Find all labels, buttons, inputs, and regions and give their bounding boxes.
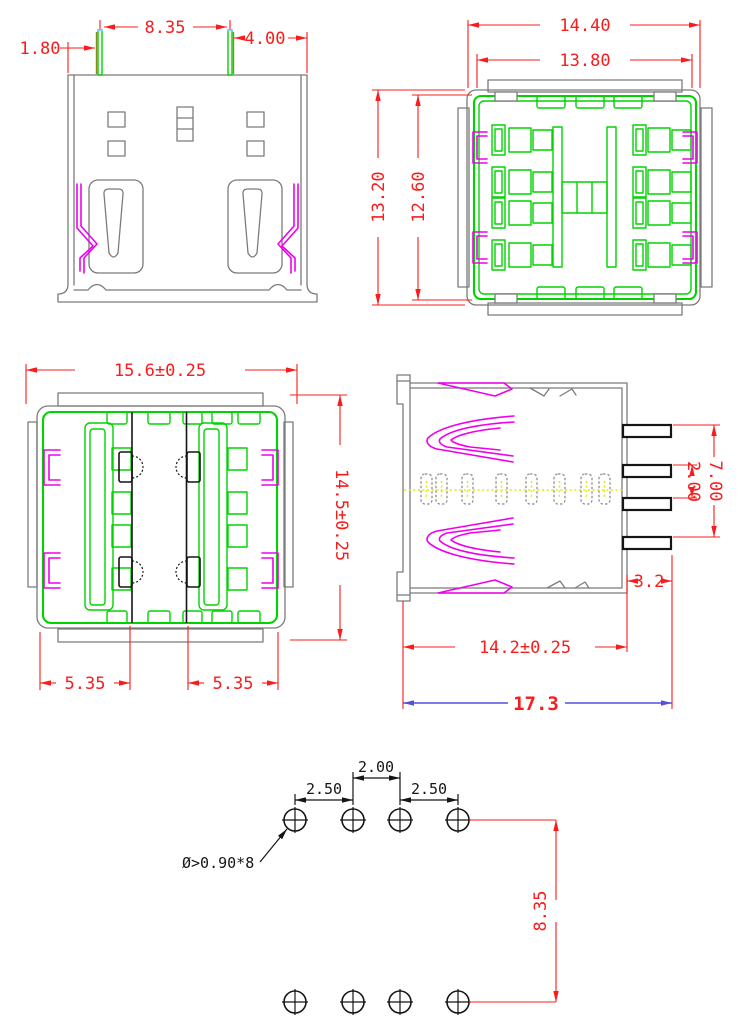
face-view: 15.6±0.25 14.5±0.25 5.35 5.35 bbox=[0, 345, 360, 720]
dim-port-right-width: 5.35 bbox=[213, 674, 254, 694]
dim-pin-left-offset: 1.80 bbox=[20, 39, 61, 59]
dim-col-pitch-center: 2.00 bbox=[358, 758, 394, 776]
side-springs bbox=[427, 383, 514, 593]
footprint-holes bbox=[282, 807, 471, 1015]
dim-port-left-width: 5.35 bbox=[65, 674, 106, 694]
side-dimensions: 7.00 2.00 3.2 14.2±0.25 17.3 bbox=[403, 425, 725, 715]
face-shell bbox=[28, 393, 293, 642]
face-dividers bbox=[119, 412, 200, 623]
footprint-dimensions: 2.50 2.50 2.00 Ø>0.90*8 8.35 bbox=[182, 758, 556, 1002]
hole bbox=[282, 989, 308, 1015]
dim-col-pitch-left: 2.50 bbox=[306, 780, 342, 798]
hole bbox=[340, 989, 366, 1015]
front-shell bbox=[58, 75, 317, 302]
face-tongues bbox=[85, 423, 247, 610]
hole bbox=[387, 807, 413, 833]
contact-row bbox=[633, 125, 691, 270]
dim-outer-depth: 13.20 bbox=[369, 171, 389, 222]
dim-pin-length: 3.2 bbox=[634, 572, 665, 592]
top-dimensions: 14.40 13.80 13.20 12.60 bbox=[369, 16, 700, 305]
drawing-canvas: 1.80 8.35 4.00 bbox=[0, 0, 740, 1024]
dim-body-width: 13.80 bbox=[559, 51, 610, 71]
dim-hole-callout: Ø>0.90*8 bbox=[182, 854, 254, 872]
hole bbox=[445, 989, 471, 1015]
top-gray-tabs bbox=[495, 92, 676, 303]
hole bbox=[282, 807, 308, 833]
side-hidden-contacts bbox=[404, 474, 625, 504]
dim-pin-group-span: 7.00 bbox=[705, 461, 725, 502]
face-insulator bbox=[43, 412, 277, 623]
hole bbox=[340, 807, 366, 833]
front-side-springs bbox=[77, 184, 298, 273]
top-view: 14.40 13.80 13.20 12.60 bbox=[370, 0, 740, 340]
hole bbox=[445, 807, 471, 833]
dim-pin-pitch: 2.00 bbox=[683, 461, 703, 502]
front-dimensions: 1.80 8.35 4.00 bbox=[20, 18, 307, 73]
dim-col-pitch-right: 2.50 bbox=[411, 780, 447, 798]
dim-overall-width: 15.6±0.25 bbox=[114, 361, 206, 381]
dim-pin-right-offset: 4.00 bbox=[245, 29, 286, 49]
footprint-view: 2.50 2.50 2.00 Ø>0.90*8 8.35 bbox=[180, 730, 600, 1024]
contact-row bbox=[492, 125, 552, 270]
front-view: 1.80 8.35 4.00 bbox=[0, 0, 340, 330]
hole bbox=[387, 989, 413, 1015]
top-insulator bbox=[474, 96, 696, 299]
dim-row-pitch: 8.35 bbox=[531, 891, 551, 932]
side-pins bbox=[623, 425, 671, 549]
dim-pin-span: 8.35 bbox=[145, 18, 186, 38]
dim-outer-width: 14.40 bbox=[559, 16, 610, 36]
side-view: 7.00 2.00 3.2 14.2±0.25 17.3 bbox=[380, 350, 740, 720]
dim-overall-height: 14.5±0.25 bbox=[331, 469, 351, 561]
dim-overall-depth: 17.3 bbox=[513, 693, 559, 715]
dim-body-depth: 14.2±0.25 bbox=[479, 638, 571, 658]
dim-body-depth: 12.60 bbox=[409, 171, 429, 222]
